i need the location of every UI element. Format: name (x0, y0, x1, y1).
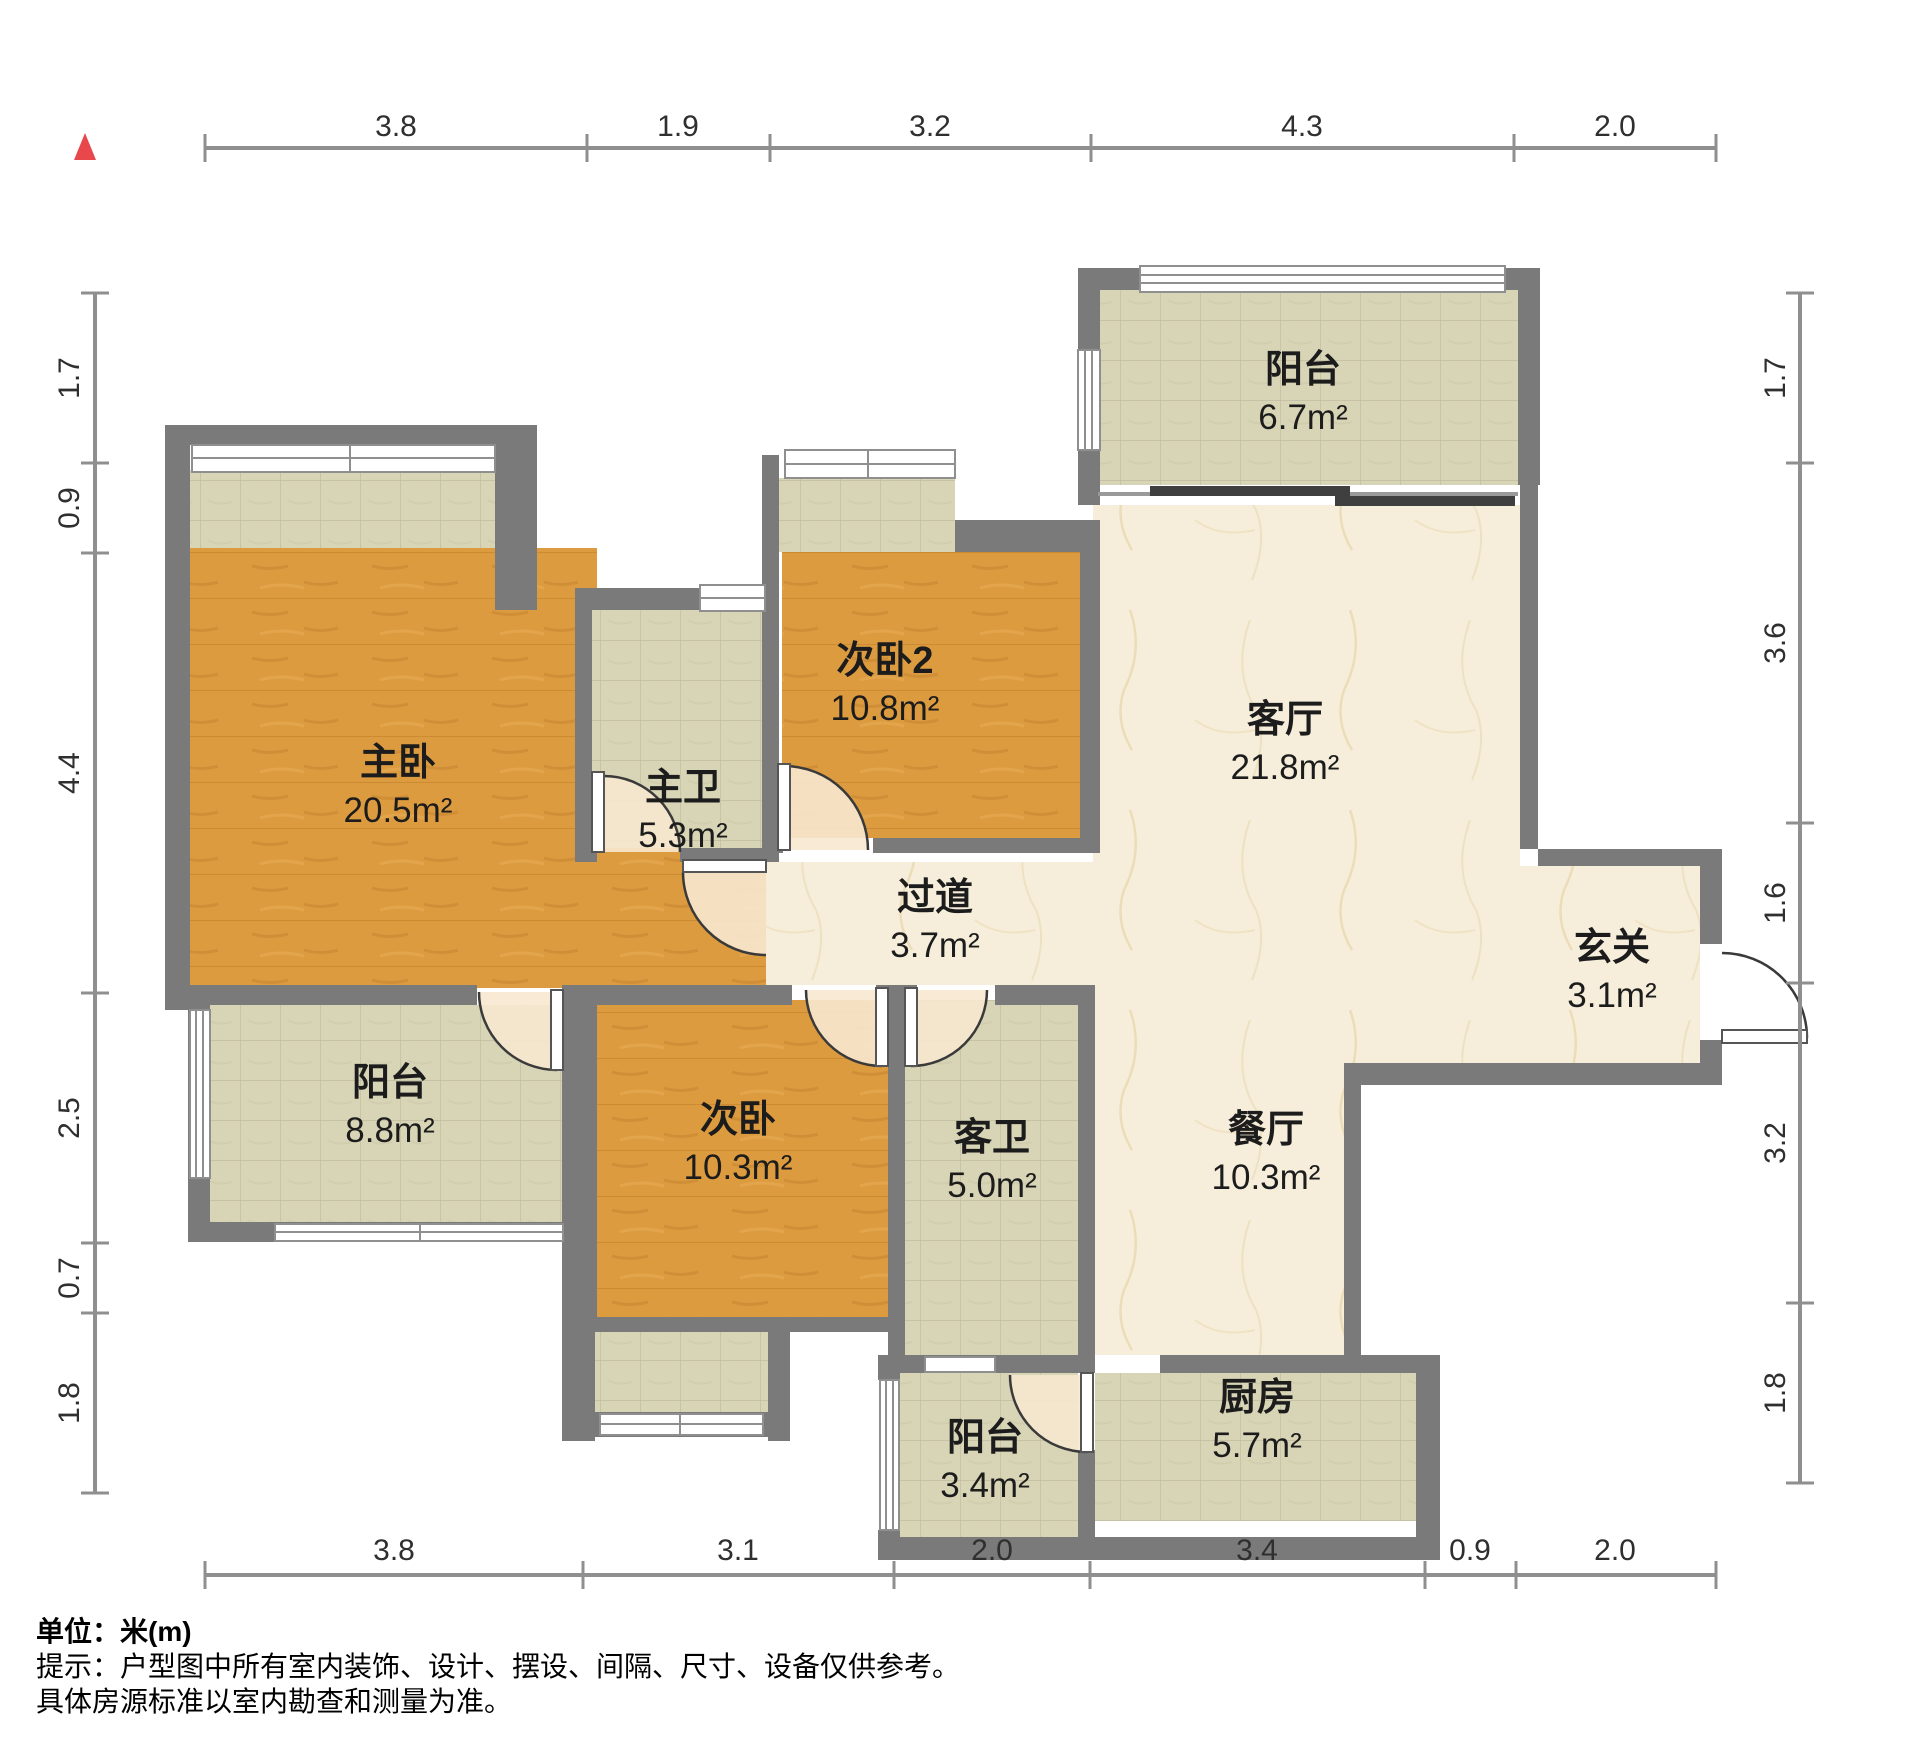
dim-bottom-1: 3.8 (373, 1534, 415, 1568)
door-entrance (1722, 953, 1807, 1043)
dim-top-2: 1.9 (657, 110, 699, 144)
dim-bottom-4: 3.4 (1236, 1534, 1278, 1568)
dim-right-1: 1.7 (1759, 357, 1793, 399)
room-label-master-bedroom: 主卧 20.5m² (344, 743, 453, 830)
dim-right-5: 1.8 (1759, 1372, 1793, 1414)
window (1140, 266, 1505, 292)
floorplan-canvas: 3.8 1.9 3.2 4.3 2.0 3.8 3.1 2.0 3.4 0.9 … (0, 0, 1920, 1764)
dim-left-5: 0.7 (53, 1257, 87, 1299)
dim-right-3: 1.6 (1759, 882, 1793, 924)
dim-bottom-6: 2.0 (1594, 1534, 1636, 1568)
master-bay-floor (190, 470, 515, 548)
dim-top-1: 3.8 (375, 110, 417, 144)
room-label-living: 客厅 21.8m² (1231, 700, 1340, 787)
room-label-bedroom2: 次卧2 10.8m² (831, 641, 940, 728)
dim-top-5: 2.0 (1594, 110, 1636, 144)
dim-bottom-5: 0.9 (1449, 1534, 1491, 1568)
dim-bottom-2: 3.1 (717, 1534, 759, 1568)
window (925, 1357, 995, 1372)
room-label-kitchen: 厨房 5.7m² (1212, 1378, 1301, 1465)
room-label-dining: 餐厅 10.3m² (1212, 1110, 1321, 1197)
window (785, 450, 955, 478)
room-label-foyer: 玄关 3.1m² (1567, 928, 1656, 1015)
unit-note: 单位：米(m) (36, 1614, 960, 1649)
tip-note-line1: 提示：户型图中所有室内装饰、设计、摆设、间隔、尺寸、设备仅供参考。 (36, 1649, 960, 1684)
dim-left-4: 2.5 (53, 1097, 87, 1139)
north-indicator-icon (74, 133, 96, 160)
footer-notes: 单位：米(m) 提示：户型图中所有室内装饰、设计、摆设、间隔、尺寸、设备仅供参考… (36, 1614, 960, 1719)
room-label-balcony-west: 阳台 8.8m² (345, 1063, 434, 1150)
window (275, 1224, 563, 1241)
window (600, 1414, 763, 1435)
dim-left-1: 1.7 (53, 357, 87, 399)
window (1078, 350, 1100, 450)
dim-right-4: 3.2 (1759, 1122, 1793, 1164)
room-label-balcony-north: 阳台 6.7m² (1258, 350, 1347, 437)
dim-right-2: 3.6 (1759, 622, 1793, 664)
sliding-door (1098, 486, 1518, 506)
window (880, 1380, 899, 1530)
window (192, 445, 495, 472)
room-label-balcony-south: 阳台 3.4m² (940, 1418, 1029, 1505)
room-label-bedroom: 次卧 10.3m² (684, 1100, 793, 1187)
window (190, 1010, 210, 1178)
dim-left-2: 0.9 (53, 487, 87, 529)
dim-top-4: 4.3 (1281, 110, 1323, 144)
dim-bottom-3: 2.0 (971, 1534, 1013, 1568)
room-label-master-bath: 主卫 5.3m² (638, 768, 727, 855)
dim-top-3: 3.2 (909, 110, 951, 144)
bed2-bay-floor (779, 478, 955, 552)
tip-note-line2: 具体房源标准以室内勘查和测量为准。 (36, 1684, 960, 1719)
window (700, 585, 765, 611)
bed-bay-floor (595, 1331, 768, 1412)
room-label-guest-bath: 客卫 5.0m² (947, 1118, 1036, 1205)
room-label-corridor: 过道 3.7m² (890, 878, 979, 965)
dim-left-3: 4.4 (53, 752, 87, 794)
dim-left-6: 1.8 (53, 1382, 87, 1424)
dining-room-floor (1093, 1063, 1344, 1355)
